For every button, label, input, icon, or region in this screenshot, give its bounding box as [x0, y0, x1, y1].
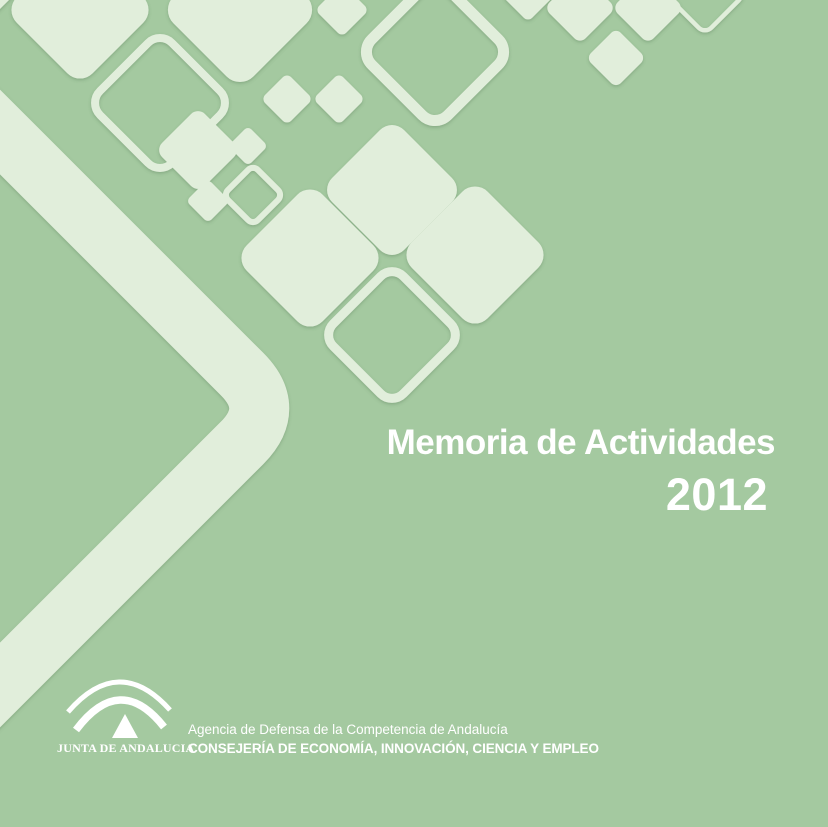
chevron-band-shape — [0, 72, 259, 755]
department-name: CONSEJERÍA DE ECONOMÍA, INNOVACIÓN, CIEN… — [188, 740, 599, 757]
agency-name: Agencia de Defensa de la Competencia de … — [188, 721, 599, 738]
footer-text: Agencia de Defensa de la Competencia de … — [188, 721, 599, 757]
title-block: Memoria de Actividades 2012 — [387, 424, 775, 518]
footer: JUNTA DE ANDALUCIA Agencia de Defensa de… — [0, 668, 828, 768]
report-year: 2012 — [387, 472, 775, 518]
cover-page: Memoria de Actividades 2012 JUNTA DE AND… — [0, 0, 828, 827]
logo-triangle — [112, 714, 138, 738]
report-title: Memoria de Actividades — [387, 424, 775, 461]
junta-de-andalucia-logo: JUNTA DE ANDALUCIA — [55, 668, 195, 763]
logo-caption: JUNTA DE ANDALUCIA — [57, 741, 193, 756]
